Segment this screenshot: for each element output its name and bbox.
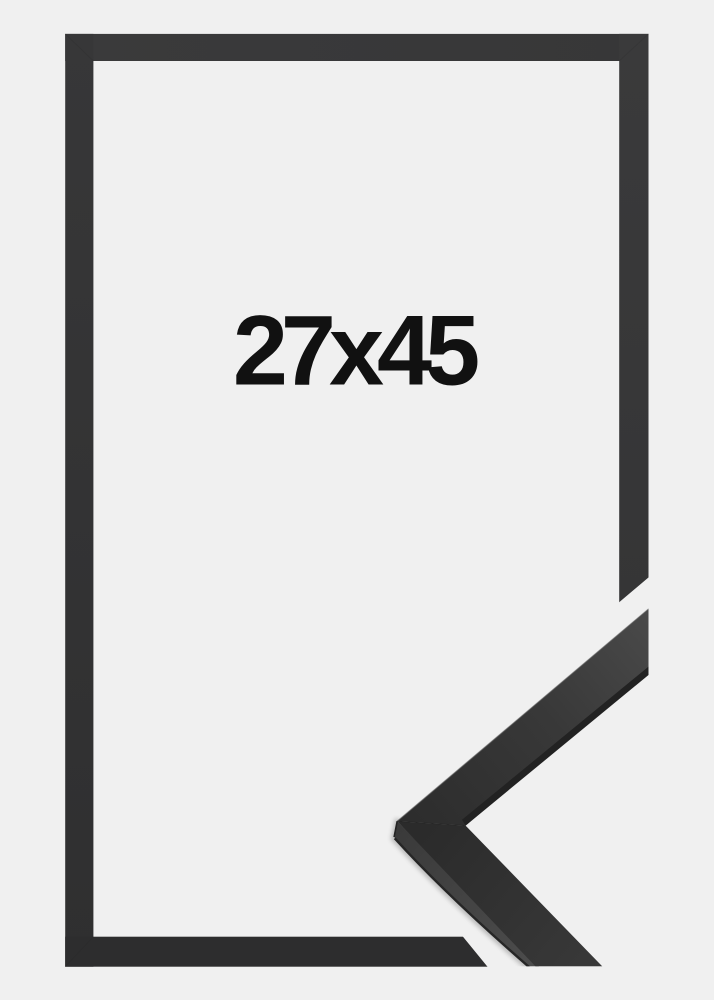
svg-text:27x45: 27x45: [233, 295, 478, 406]
